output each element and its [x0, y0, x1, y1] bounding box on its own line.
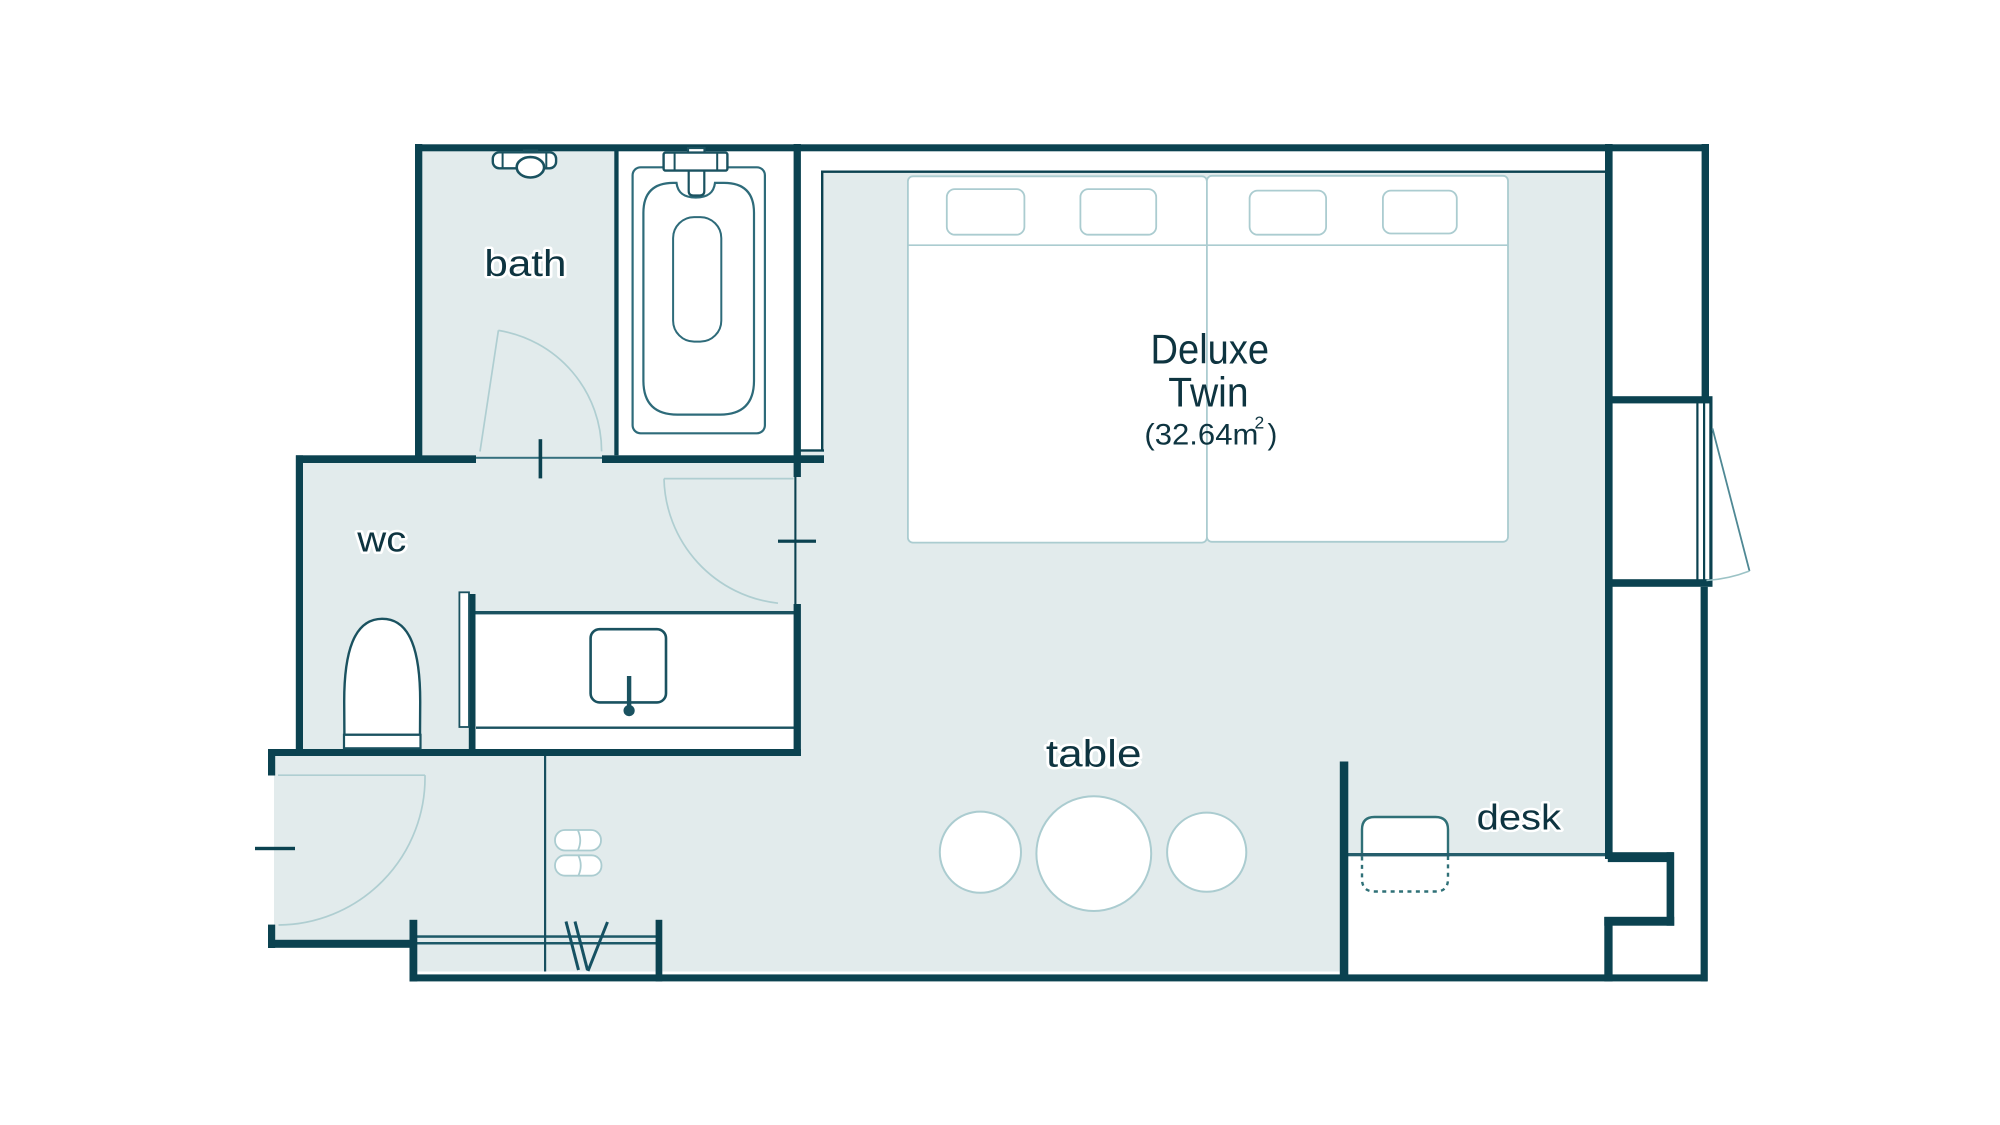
svg-text:Deluxe: Deluxe	[1151, 326, 1270, 373]
svg-text:table: table	[1046, 733, 1142, 775]
svg-text:2: 2	[1255, 413, 1265, 433]
svg-text:wc: wc	[356, 519, 406, 560]
svg-text:bath: bath	[484, 243, 566, 284]
svg-text:(32.64m: (32.64m	[1144, 419, 1258, 452]
svg-text:Twin: Twin	[1168, 369, 1248, 416]
svg-text:desk: desk	[1477, 797, 1563, 838]
svg-text:): )	[1268, 419, 1278, 452]
